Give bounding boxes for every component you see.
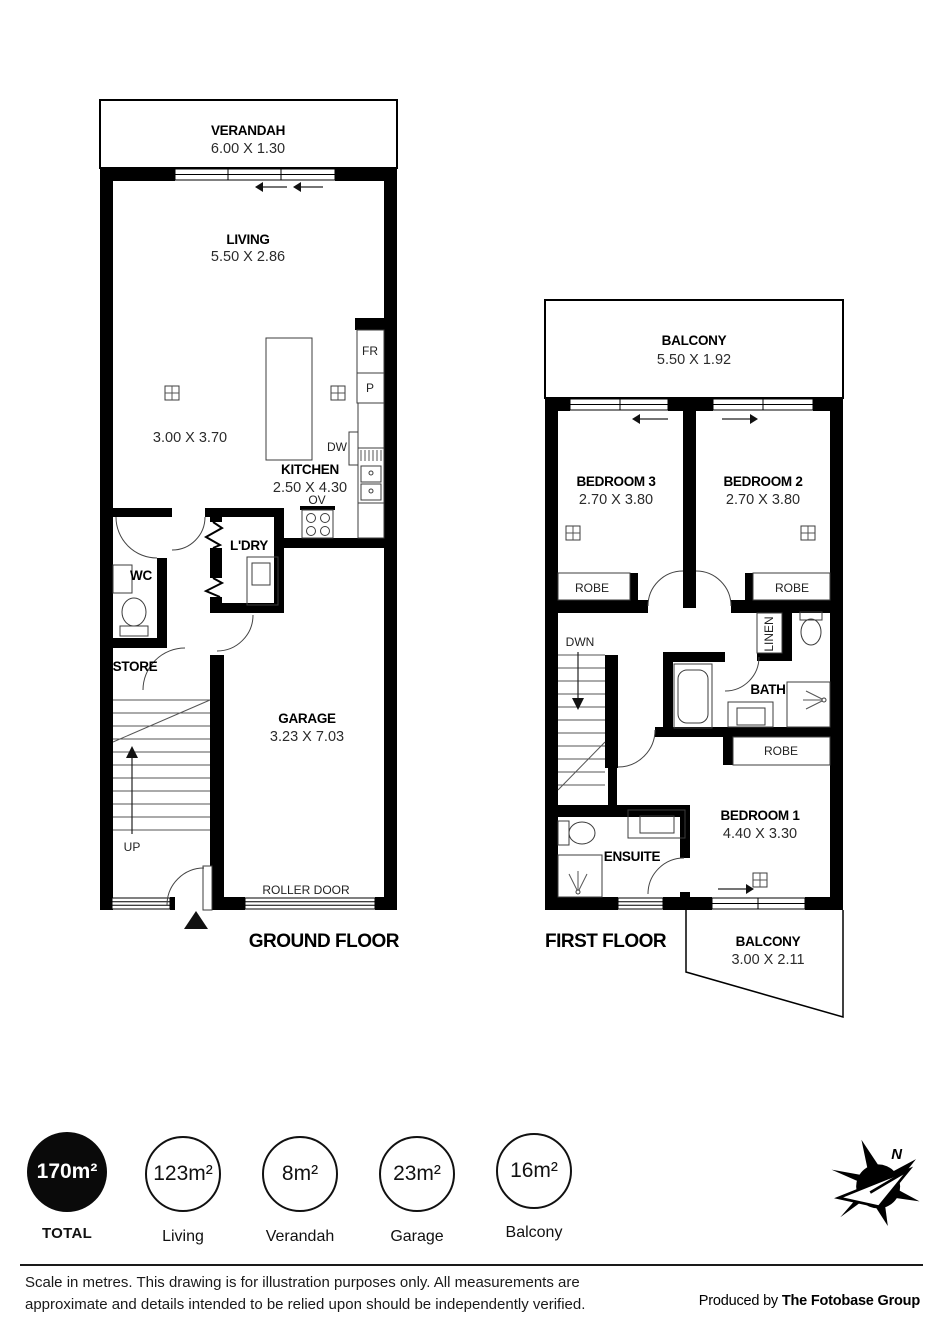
floorplan-page: VERANDAH 6.00 X 1.30 LIVING 5.50 X 2.86 … bbox=[0, 0, 943, 1333]
bedroom3-sliding-door bbox=[570, 399, 668, 424]
ensuite-shower bbox=[558, 855, 602, 897]
bedroom1-label: BEDROOM 1 bbox=[720, 808, 800, 823]
living-label: LIVING bbox=[226, 232, 269, 247]
hall-door-arc bbox=[172, 517, 205, 550]
laundry-label: L'DRY bbox=[230, 538, 268, 553]
living-sliding-door bbox=[175, 169, 335, 192]
gf-bottom-wall bbox=[170, 897, 175, 910]
garage-label: GARAGE bbox=[278, 711, 336, 726]
ldry-left-stub bbox=[210, 508, 222, 522]
vent-icon bbox=[331, 386, 345, 400]
ensuite-window bbox=[618, 898, 663, 909]
total-area-label: TOTAL bbox=[12, 1225, 122, 1242]
bath-toilet-icon bbox=[800, 612, 822, 645]
bedroom2-door-arc bbox=[696, 571, 731, 606]
ff-left-wall bbox=[545, 398, 558, 910]
wc-toilet-icon bbox=[120, 598, 148, 636]
robe1-stub bbox=[723, 727, 733, 765]
total-area-value: 170m² bbox=[37, 1160, 98, 1184]
balcony-area-circle: 16m² bbox=[496, 1133, 572, 1209]
producer-credit: Produced by The Fotobase Group bbox=[699, 1293, 920, 1309]
robe-stub bbox=[630, 573, 638, 603]
bath-vanity bbox=[728, 702, 773, 727]
balcony-top-label: BALCONY bbox=[662, 333, 727, 348]
ff-bottom-wall bbox=[805, 897, 843, 910]
bedroom3-label: BEDROOM 3 bbox=[576, 474, 656, 489]
ensuite-jog-wall bbox=[608, 763, 617, 807]
bathtub bbox=[674, 664, 712, 728]
gf-bottom-wall bbox=[375, 897, 397, 910]
bedroom3-door-arc bbox=[648, 571, 683, 606]
cavity-door-symbol bbox=[206, 578, 222, 597]
fridge-label: FR bbox=[362, 344, 378, 358]
living-dim: 5.50 X 2.86 bbox=[211, 249, 285, 265]
bath-label: BATH bbox=[750, 682, 785, 697]
linen-label: LINEN bbox=[762, 616, 776, 651]
robe3-label: ROBE bbox=[575, 581, 609, 595]
laundry-trough bbox=[247, 557, 278, 605]
bath-alcove-wall bbox=[663, 652, 673, 732]
garage-left-wall bbox=[210, 655, 224, 897]
gf-bottom-wall bbox=[212, 897, 245, 910]
balcony-area-label: Balcony bbox=[479, 1224, 589, 1242]
wc-bottom-wall bbox=[100, 638, 167, 648]
total-area-circle: 170m² bbox=[27, 1132, 107, 1212]
balcony-area-value: 16m² bbox=[510, 1159, 558, 1183]
roller-door-label: ROLLER DOOR bbox=[262, 883, 350, 897]
verandah-label: VERANDAH bbox=[211, 123, 285, 138]
linen-stub bbox=[757, 653, 792, 661]
verandah-area-value: 8m² bbox=[282, 1162, 318, 1186]
wc-label: WC bbox=[130, 568, 152, 583]
robe-stub bbox=[745, 573, 753, 603]
ensuite-label: ENSUITE bbox=[604, 849, 661, 864]
entry-marker-icon bbox=[184, 911, 208, 929]
front-door-leaf bbox=[203, 866, 212, 910]
garage-area-value: 23m² bbox=[393, 1162, 441, 1186]
vent-icon bbox=[753, 873, 767, 887]
badge-total: 170m² TOTAL bbox=[12, 1132, 122, 1242]
gf-bottom-wall bbox=[100, 897, 112, 910]
living-area-label: Living bbox=[128, 1228, 238, 1246]
kitchen-garage-wall bbox=[278, 538, 397, 548]
disclaimer-text: Scale in metres. This drawing is for ill… bbox=[25, 1272, 610, 1316]
ff-top-wall bbox=[668, 398, 713, 411]
store-label: STORE bbox=[113, 659, 158, 674]
meals-dim: 3.00 X 3.70 bbox=[153, 430, 227, 446]
verandah-area-circle: 8m² bbox=[262, 1136, 338, 1212]
ff-right-wall bbox=[830, 398, 843, 910]
wc-top-wall bbox=[100, 508, 172, 517]
garage-door-arc bbox=[217, 615, 253, 651]
dishwasher-label: DW bbox=[327, 440, 348, 454]
bedroom3-dim: 2.70 X 3.80 bbox=[579, 492, 653, 508]
balcony-top-dim: 5.50 X 1.92 bbox=[657, 352, 731, 368]
balcony-bottom-label: BALCONY bbox=[736, 934, 801, 949]
ensuite-toilet-icon bbox=[558, 821, 595, 845]
balcony-top-outline bbox=[545, 300, 843, 398]
bedroom1-sliding-door bbox=[712, 884, 805, 909]
ensuite-right-wall bbox=[680, 892, 690, 897]
fridge-nook-stub bbox=[355, 318, 384, 330]
footer-divider bbox=[20, 1264, 923, 1266]
cooktop bbox=[300, 506, 335, 538]
balcony-bottom-dim: 3.00 X 2.11 bbox=[731, 952, 804, 968]
vent-icon bbox=[801, 526, 815, 540]
credit-name: The Fotobase Group bbox=[782, 1293, 920, 1309]
north-letter: N bbox=[891, 1146, 903, 1163]
ff-bottom-wall bbox=[663, 897, 712, 910]
oven-label: OV bbox=[308, 493, 325, 507]
garage-dim: 3.23 X 7.03 bbox=[270, 729, 344, 745]
stair-wall bbox=[605, 655, 618, 768]
bedroom1-dim: 4.40 X 3.30 bbox=[723, 826, 797, 842]
cavity-door-symbol bbox=[206, 522, 222, 548]
gf-left-wall bbox=[100, 168, 113, 910]
bedroom2-label: BEDROOM 2 bbox=[723, 474, 802, 489]
robe1-label: ROBE bbox=[764, 744, 798, 758]
credit-prefix: Produced by bbox=[699, 1293, 782, 1309]
floorplan-drawing: VERANDAH 6.00 X 1.30 LIVING 5.50 X 2.86 … bbox=[0, 0, 943, 1060]
island-bench bbox=[266, 338, 312, 460]
stairs-down bbox=[558, 652, 605, 790]
dwn-label: DWN bbox=[566, 635, 595, 649]
first-floor-plan: BALCONY 5.50 X 1.92 BEDROOM 3 2.70 X 3.8… bbox=[545, 300, 843, 1017]
fotobase-compass-logo: N bbox=[828, 1138, 923, 1226]
living-area-value: 123m² bbox=[153, 1162, 213, 1186]
vent-icon bbox=[165, 386, 179, 400]
badge-living: 123m² Living bbox=[128, 1136, 238, 1246]
ldry-right-wall bbox=[274, 508, 284, 613]
badge-garage: 23m² Garage bbox=[362, 1136, 472, 1246]
bedroom-divider-wall bbox=[683, 411, 696, 608]
ff-bottom-wall bbox=[545, 897, 618, 910]
wc-right-wall bbox=[157, 558, 167, 648]
stairs-up bbox=[113, 700, 210, 834]
roller-door-opening bbox=[245, 898, 375, 909]
badge-verandah: 8m² Verandah bbox=[245, 1136, 355, 1246]
vent-icon bbox=[566, 526, 580, 540]
verandah-area-label: Verandah bbox=[245, 1228, 355, 1246]
bedroom1-door-arc bbox=[618, 730, 655, 767]
badge-balcony: 16m² Balcony bbox=[479, 1133, 589, 1242]
gf-window bbox=[112, 898, 170, 909]
robe2-label: ROBE bbox=[775, 581, 809, 595]
bedroom2-sliding-door bbox=[713, 399, 813, 424]
garage-area-circle: 23m² bbox=[379, 1136, 455, 1212]
first-floor-title: FIRST FLOOR bbox=[545, 931, 667, 952]
bedroom2-dim: 2.70 X 3.80 bbox=[726, 492, 800, 508]
pantry-label: P bbox=[366, 381, 374, 395]
up-label: UP bbox=[124, 840, 141, 854]
ground-floor-plan: VERANDAH 6.00 X 1.30 LIVING 5.50 X 2.86 … bbox=[100, 100, 400, 952]
dishwasher-box bbox=[349, 432, 358, 465]
ground-floor-title: GROUND FLOOR bbox=[249, 931, 400, 952]
verandah-dim: 6.00 X 1.30 bbox=[211, 141, 285, 157]
ldry-left-stub bbox=[210, 548, 222, 578]
garage-area-label: Garage bbox=[362, 1228, 472, 1246]
living-area-circle: 123m² bbox=[145, 1136, 221, 1212]
kitchen-label: KITCHEN bbox=[281, 462, 339, 477]
kitchen-sink bbox=[358, 448, 384, 503]
wc-door-arc bbox=[116, 517, 157, 558]
bath-shower bbox=[787, 682, 830, 727]
